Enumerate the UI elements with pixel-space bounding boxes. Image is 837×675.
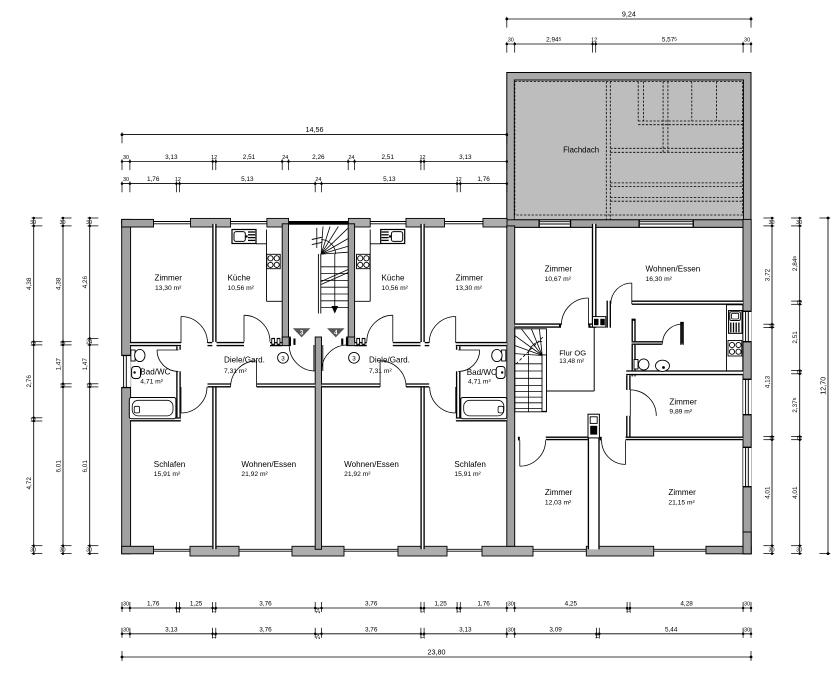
svg-text:12,70: 12,70 [818, 377, 827, 395]
svg-text:4,28: 4,28 [680, 601, 693, 608]
svg-text:Zimmer: Zimmer [545, 488, 573, 497]
svg-text:30: 30 [123, 627, 129, 633]
svg-text:30: 30 [30, 220, 36, 226]
svg-text:3,09: 3,09 [549, 626, 562, 633]
svg-text:6,01: 6,01 [82, 460, 89, 473]
svg-text:12: 12 [211, 155, 217, 161]
svg-text:30: 30 [744, 627, 750, 633]
svg-text:Zimmer: Zimmer [456, 274, 484, 283]
svg-text:4,71 m²: 4,71 m² [468, 379, 491, 386]
svg-text:12: 12 [457, 607, 463, 613]
svg-text:4,01: 4,01 [792, 486, 799, 499]
svg-text:Wohnen/Essen: Wohnen/Essen [241, 460, 296, 469]
svg-text:3,72: 3,72 [764, 268, 771, 281]
svg-text:12: 12 [419, 155, 425, 161]
svg-text:30: 30 [768, 548, 774, 554]
svg-text:3: 3 [281, 355, 285, 362]
svg-text:11: 11 [626, 608, 632, 614]
svg-text:1,47: 1,47 [55, 358, 62, 371]
svg-text:Diele/Gard.: Diele/Gard. [224, 355, 265, 364]
svg-text:16,30 m²: 16,30 m² [646, 276, 673, 283]
svg-text:1,25: 1,25 [434, 601, 447, 608]
svg-text:12: 12 [768, 324, 774, 330]
svg-text:21,15 m²: 21,15 m² [668, 499, 695, 506]
svg-text:30: 30 [59, 220, 65, 226]
svg-text:24: 24 [316, 633, 322, 639]
svg-text:Schlafen: Schlafen [154, 460, 186, 469]
svg-text:Zimmer: Zimmer [545, 265, 573, 274]
svg-text:12: 12 [768, 436, 774, 442]
svg-text:1,76: 1,76 [477, 601, 490, 608]
svg-text:1,76: 1,76 [147, 601, 160, 608]
svg-text:24: 24 [315, 177, 321, 183]
svg-text:2,51: 2,51 [381, 154, 394, 161]
svg-text:Bad/WC: Bad/WC [140, 367, 170, 376]
svg-text:1,25: 1,25 [190, 601, 203, 608]
svg-text:12: 12 [796, 301, 802, 307]
svg-text:12,03 m²: 12,03 m² [545, 499, 572, 506]
svg-text:13,48 m²: 13,48 m² [559, 358, 584, 365]
svg-text:4,38: 4,38 [55, 277, 62, 290]
svg-text:Flur OG: Flur OG [559, 349, 586, 358]
svg-text:5,44: 5,44 [665, 626, 678, 633]
svg-text:3,13: 3,13 [165, 626, 178, 633]
svg-text:4,72: 4,72 [26, 477, 33, 490]
svg-text:Zimmer: Zimmer [668, 488, 696, 497]
svg-text:12: 12 [30, 417, 36, 423]
svg-text:30: 30 [123, 155, 129, 161]
svg-text:Wohnen/Essen: Wohnen/Essen [344, 460, 399, 469]
svg-text:4,01: 4,01 [764, 486, 771, 499]
svg-text:Bad/WC: Bad/WC [467, 368, 497, 377]
svg-text:30: 30 [768, 220, 774, 226]
svg-text:12: 12 [796, 370, 802, 376]
svg-text:12: 12 [59, 341, 65, 347]
svg-text:1,76: 1,76 [477, 176, 490, 183]
svg-text:Zimmer: Zimmer [155, 274, 183, 283]
svg-text:3,13: 3,13 [459, 154, 472, 161]
svg-text:21,92 m²: 21,92 m² [241, 471, 268, 478]
svg-text:12: 12 [175, 177, 181, 183]
svg-text:15,91 m²: 15,91 m² [454, 471, 481, 478]
svg-text:12: 12 [420, 633, 426, 639]
svg-text:3,76: 3,76 [259, 626, 272, 633]
svg-text:21,92 m²: 21,92 m² [344, 471, 371, 478]
svg-text:3,76: 3,76 [365, 601, 378, 608]
svg-text:10,67 m²: 10,67 m² [545, 276, 572, 283]
svg-text:2,26: 2,26 [312, 154, 325, 161]
svg-text:30: 30 [86, 548, 92, 554]
svg-text:2,51: 2,51 [243, 154, 256, 161]
svg-text:4,13: 4,13 [764, 375, 771, 388]
svg-text:4: 4 [334, 330, 338, 337]
svg-text:12: 12 [796, 436, 802, 442]
svg-text:9,89 m²: 9,89 m² [669, 408, 692, 415]
svg-text:5,13: 5,13 [383, 176, 396, 183]
svg-text:11: 11 [596, 634, 602, 640]
svg-text:24: 24 [316, 607, 322, 613]
svg-text:1,47: 1,47 [82, 358, 89, 371]
svg-text:5,13: 5,13 [241, 176, 254, 183]
svg-text:12: 12 [212, 633, 218, 639]
svg-text:4,38: 4,38 [26, 277, 33, 290]
svg-text:30: 30 [123, 177, 129, 183]
svg-text:24: 24 [348, 155, 354, 161]
svg-text:14,56: 14,56 [306, 125, 324, 134]
svg-text:Wohnen/Essen: Wohnen/Essen [646, 265, 701, 274]
svg-text:10,56 m²: 10,56 m² [382, 285, 409, 292]
svg-text:Zimmer: Zimmer [669, 397, 697, 406]
svg-text:12: 12 [86, 383, 92, 389]
svg-text:3,76: 3,76 [365, 626, 378, 633]
svg-text:4,25: 4,25 [565, 601, 578, 608]
svg-text:12: 12 [176, 607, 182, 613]
svg-text:3,76: 3,76 [259, 601, 272, 608]
svg-text:15,91 m²: 15,91 m² [154, 471, 181, 478]
svg-text:Diele/Gard.: Diele/Gard. [369, 355, 410, 364]
svg-text:30: 30 [796, 548, 802, 554]
svg-text:Flachdach: Flachdach [563, 146, 599, 155]
svg-text:4,26: 4,26 [82, 276, 89, 289]
svg-text:13,30 m²: 13,30 m² [155, 285, 182, 292]
svg-text:12: 12 [59, 383, 65, 389]
svg-text:6,01: 6,01 [55, 460, 62, 473]
svg-text:7,31 m²: 7,31 m² [224, 368, 247, 375]
svg-text:Küche: Küche [382, 274, 405, 283]
svg-text:2,51: 2,51 [792, 331, 799, 344]
svg-text:30: 30 [796, 220, 802, 226]
svg-text:2,76: 2,76 [26, 375, 33, 388]
svg-text:Küche: Küche [228, 274, 251, 283]
svg-text:12: 12 [591, 38, 597, 44]
svg-text:12: 12 [212, 607, 218, 613]
svg-text:30: 30 [123, 602, 129, 608]
svg-text:12: 12 [456, 177, 462, 183]
svg-text:30: 30 [59, 548, 65, 554]
svg-text:30: 30 [508, 38, 514, 44]
svg-text:9,24: 9,24 [622, 10, 636, 19]
svg-text:30: 30 [508, 627, 514, 633]
svg-text:12: 12 [30, 341, 36, 347]
svg-text:3,13: 3,13 [459, 626, 472, 633]
svg-text:10,56 m²: 10,56 m² [228, 285, 255, 292]
svg-text:4,71 m²: 4,71 m² [140, 379, 163, 386]
svg-text:13,30 m²: 13,30 m² [456, 285, 483, 292]
svg-text:23,80: 23,80 [428, 648, 446, 657]
svg-text:12: 12 [420, 607, 426, 613]
svg-text:24: 24 [86, 340, 92, 346]
svg-text:Schlafen: Schlafen [454, 460, 486, 469]
svg-text:30: 30 [744, 38, 750, 44]
svg-text:30: 30 [508, 602, 514, 608]
svg-text:1,76: 1,76 [147, 176, 160, 183]
svg-text:24: 24 [282, 155, 288, 161]
svg-text:3: 3 [300, 330, 304, 337]
svg-text:7,31 m²: 7,31 m² [369, 368, 392, 375]
svg-text:30: 30 [30, 548, 36, 554]
svg-text:30: 30 [86, 220, 92, 226]
svg-text:3,13: 3,13 [165, 154, 178, 161]
svg-text:3: 3 [352, 355, 356, 362]
svg-text:30: 30 [744, 602, 750, 608]
